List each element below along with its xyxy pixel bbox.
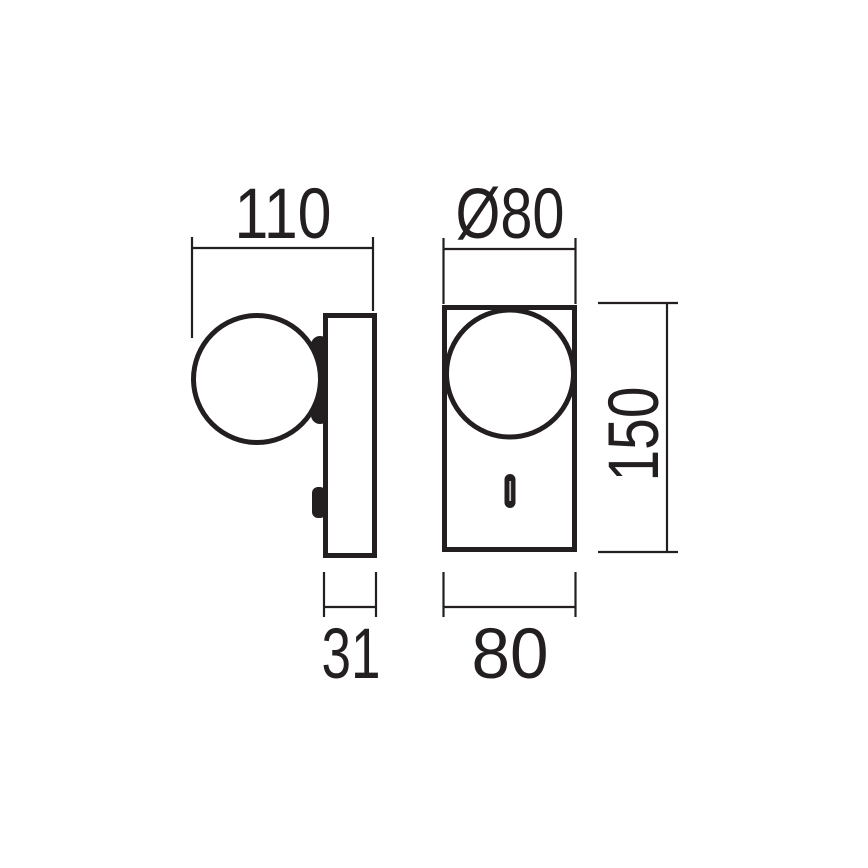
dimension-label-body-width: 80: [472, 615, 549, 694]
switch-slot-highlight: [509, 481, 511, 501]
dimension-body-height: 150: [595, 303, 678, 552]
dimension-label-body-height: 150: [595, 387, 674, 482]
wall-plate-side-outline: [326, 316, 375, 556]
dimension-body-depth: 31: [322, 572, 381, 694]
side-view: [194, 316, 375, 556]
dimension-label-sphere-diameter: Ø80: [456, 175, 565, 254]
dimension-label-body-depth: 31: [322, 615, 381, 694]
dimension-label-overall-depth: 110: [235, 175, 332, 254]
sphere-front-outline: [447, 310, 574, 437]
sphere-side-outline: [194, 316, 321, 443]
dimension-sphere-diameter: Ø80: [444, 175, 576, 304]
front-view: [445, 308, 575, 550]
technical-drawing-canvas: 110 Ø80 150 31 80: [0, 0, 868, 868]
dimension-body-width: 80: [444, 572, 576, 694]
wall-lamp-dimension-drawing: 110 Ø80 150 31 80: [0, 0, 868, 868]
